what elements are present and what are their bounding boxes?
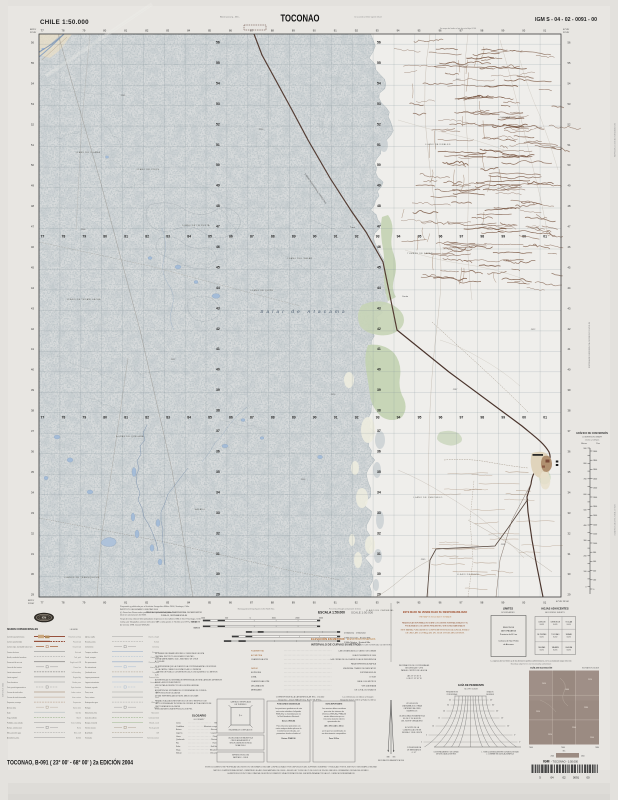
svg-text:Region bdy: Region bdy xyxy=(73,677,81,679)
svg-text:ELEVATION GUIDE: ELEVATION GUIDE xyxy=(582,667,600,670)
svg-text:parametros locales referidos a: parametros locales referidos al xyxy=(277,732,302,735)
svg-text:93: 93 xyxy=(376,235,380,239)
svg-text:DEL NORTE VERDADERO: DEL NORTE VERDADERO xyxy=(401,720,423,723)
svg-text:3000: 3000 xyxy=(593,451,597,453)
svg-text:ESCALA 1:50.000: ESCALA 1:50.000 xyxy=(318,611,345,615)
svg-text:. 2308: . 2308 xyxy=(80,229,85,231)
svg-text:37: 37 xyxy=(216,429,220,433)
svg-text:2000: 2000 xyxy=(295,618,299,620)
svg-text:son directamente comparables.: son directamente comparables. xyxy=(322,732,347,735)
svg-text:0: 0 xyxy=(586,586,587,588)
svg-text:DE 1.78 A 2.30 GRADOS: DE 1.78 A 2.30 GRADOS xyxy=(355,689,377,692)
svg-text:77: 77 xyxy=(41,29,45,33)
svg-text:YARDS: YARDS xyxy=(193,626,200,629)
svg-text:ESTE DOCUMENTO ES PROPIEDAD DE: ESTE DOCUMENTO ES PROPIEDAD DEL INSTITUT… xyxy=(205,766,377,769)
svg-text:2320: 2320 xyxy=(548,734,552,736)
svg-text:Marsh: Marsh xyxy=(77,717,82,719)
svg-text:Provincia de El Loa: Provincia de El Loa xyxy=(500,634,518,636)
svg-text:ELIPSOIDE: ELIPSOIDE xyxy=(251,672,262,674)
svg-text:Panamerican hwy: Panamerican hwy xyxy=(68,637,81,639)
svg-text:aproximados de:: aproximados de: xyxy=(328,720,341,723)
svg-text:PLANIMETRIA: PLANIMETRIA xyxy=(251,650,264,653)
svg-text:7600: 7600 xyxy=(529,747,533,749)
svg-text:77: 77 xyxy=(41,235,45,239)
svg-text:Mountain range: Mountain range xyxy=(204,725,217,728)
svg-text:esta zona alcanzan valores: esta zona alcanzan valores xyxy=(323,717,344,720)
svg-text:SISTEMA DE REFERENCIA GEODESIC: SISTEMA DE REFERENCIA GEODESICO WGS-84 xyxy=(588,321,591,368)
svg-text:87: 87 xyxy=(250,29,254,33)
svg-text:LAT 23° 07' 30" S: LAT 23° 07' 30" S xyxy=(407,675,422,678)
svg-text:48: 48 xyxy=(377,204,381,208)
svg-text:AGUAS DE QUELANA: AGUAS DE QUELANA xyxy=(116,435,144,438)
svg-text:CONVERSION GRAPH: CONVERSION GRAPH xyxy=(582,435,603,438)
svg-text:53: 53 xyxy=(377,102,381,106)
svg-text:SANTIAGO - CHILE: SANTIAGO - CHILE xyxy=(233,756,249,759)
svg-text:METROS: METROS xyxy=(191,622,200,624)
svg-text:CHILE 1:50.000: CHILE 1:50.000 xyxy=(40,19,89,26)
svg-text:IGM: IGM xyxy=(42,617,47,620)
svg-text:THE MAP IS SOLD AS IT IS MADE: THE MAP IS SOLD AS IT IS MADE xyxy=(419,616,452,619)
svg-text:Power line: Power line xyxy=(74,667,82,669)
svg-text:2800: 2800 xyxy=(593,460,597,462)
svg-text:49: 49 xyxy=(216,184,220,188)
svg-text:200: 200 xyxy=(593,580,596,582)
svg-text:37: 37 xyxy=(377,429,381,433)
svg-text:47: 47 xyxy=(216,225,220,229)
svg-text:Refugio: Refugio xyxy=(85,707,91,709)
svg-text:Depression: Depression xyxy=(73,702,81,704)
svg-text:INFORMACION DE COORDENADAS: INFORMACION DE COORDENADAS xyxy=(399,664,430,667)
svg-text:B-092: B-092 xyxy=(553,637,557,639)
svg-text:600: 600 xyxy=(593,561,596,563)
svg-text:900: 900 xyxy=(584,448,587,450)
svg-text:GUÍA DE ELEVACIÓN: GUÍA DE ELEVACIÓN xyxy=(530,667,553,670)
svg-text:INTERVALO DE CURVAS 50 METROS: INTERVALO DE CURVAS 50 METROS xyxy=(311,643,361,647)
svg-text:Ruins: Ruins xyxy=(77,728,81,730)
svg-text:45°: 45° xyxy=(490,700,493,702)
svg-text:Rocky ground: Rocky ground xyxy=(149,728,159,730)
svg-text:TUMBRE DE ZAPAR: TUMBRE DE ZAPAR xyxy=(407,252,433,255)
svg-text:GEODESICAS Y UTM: GEODESICAS Y UTM xyxy=(405,667,423,670)
svg-text:97: 97 xyxy=(460,29,464,33)
svg-text:total sin autorizacion del IGM: total sin autorizacion del IGM. xyxy=(120,614,147,617)
svg-text:- LIMITES DE HOJA 0.5 CM DEREC: - LIMITES DE HOJA 0.5 CM DERECHO A 0.25 … xyxy=(155,671,218,674)
svg-text:Tranque, embalse: Tranque, embalse xyxy=(85,652,98,654)
svg-text:LLANOS DE TEBENQUICHE: LLANOS DE TEBENQUICHE xyxy=(64,576,100,579)
svg-text:800: 800 xyxy=(593,552,596,554)
svg-text:ZONA 19, SISTEMA WGS-84: ZONA 19, SISTEMA WGS-84 xyxy=(161,614,188,617)
svg-text:Vega, bofedal: Vega, bofedal xyxy=(7,717,17,719)
svg-text:Church, chapel: Church, chapel xyxy=(148,637,159,639)
svg-text:01: 01 xyxy=(543,416,547,420)
svg-text:River: River xyxy=(213,742,218,745)
svg-text:Zona 19 Sur: Zona 19 Sur xyxy=(329,738,339,740)
svg-text:SCALE 1:50.000: SCALE 1:50.000 xyxy=(351,611,373,615)
svg-text:. 2398: . 2398 xyxy=(500,544,505,546)
svg-text:42: 42 xyxy=(216,327,220,331)
svg-text:Tower: Tower xyxy=(155,697,160,699)
svg-text:POSICIONES GEODESICAS: POSICIONES GEODESICAS xyxy=(277,703,301,706)
svg-text:39: 39 xyxy=(377,388,381,392)
svg-text:cartas antiguas debe aplicarse: cartas antiguas debe aplicarse la xyxy=(276,727,302,730)
svg-text:86: 86 xyxy=(229,416,233,420)
svg-text:92: 92 xyxy=(355,235,359,239)
svg-text:LLANO DE VILAMA: LLANO DE VILAMA xyxy=(76,151,101,154)
svg-text:La vigencia de los limites y d: La vigencia de los limites y de las divi… xyxy=(491,660,572,663)
svg-text:67°45' 23°00': 67°45' 23°00' xyxy=(556,601,570,603)
svg-text:Curvas de nivel indice: Curvas de nivel indice xyxy=(7,692,23,694)
svg-text:43: 43 xyxy=(377,306,381,310)
svg-text:96: 96 xyxy=(439,416,443,420)
svg-text:99: 99 xyxy=(501,235,505,239)
svg-text:45: 45 xyxy=(449,700,451,702)
svg-text:LON 67° 52' 30" W: LON 67° 52' 30" W xyxy=(406,678,421,680)
svg-text:51: 51 xyxy=(216,143,220,147)
svg-text:PROBLEMA DE LOS LIMITES PENDIE: PROBLEMA DE LOS LIMITES PENDIENTES, VER … xyxy=(405,625,466,628)
svg-text:500: 500 xyxy=(584,509,587,511)
svg-text:LLANO PAJONALES: LLANO PAJONALES xyxy=(425,143,451,146)
svg-text:98: 98 xyxy=(480,416,484,420)
svg-text:Pies: Pies xyxy=(596,443,600,445)
svg-text:SALADO: SALADO xyxy=(195,508,206,511)
svg-text:2550: 2550 xyxy=(581,756,585,758)
svg-text:ADVERTENCIA: SISTEMAS DE COORD: ADVERTENCIA: SISTEMAS DE COORDENADAS DE … xyxy=(155,689,207,692)
svg-text:. 2345: . 2345 xyxy=(420,559,425,561)
svg-text:85: 85 xyxy=(208,416,212,420)
svg-text:Datum: WGS-84: Datum: WGS-84 xyxy=(282,720,295,723)
svg-text:0.25: 0.25 xyxy=(155,675,159,677)
svg-text:Salt flat: Salt flat xyxy=(211,745,218,748)
svg-text:Mina, pozo de agua: Mina, pozo de agua xyxy=(7,733,21,735)
svg-text:80: 80 xyxy=(103,416,107,420)
svg-text:44: 44 xyxy=(216,286,220,290)
svg-text:82: 82 xyxy=(145,235,149,239)
svg-text:00: 00 xyxy=(522,416,526,420)
svg-text:41: 41 xyxy=(216,347,220,351)
svg-text:Comp. por fotografias aereas v: Comp. por fotografias aereas verticales … xyxy=(120,620,198,623)
svg-text:22°45': 22°45' xyxy=(30,32,37,34)
svg-text:Ravine: Ravine xyxy=(211,739,217,741)
svg-text:LLANO DE POZO: LLANO DE POZO xyxy=(457,573,479,576)
svg-text:47: 47 xyxy=(377,225,381,229)
svg-text:IGM: IGM xyxy=(543,760,550,764)
svg-text:2400: 2400 xyxy=(565,689,569,691)
svg-text:LA REPRODUCCION TOTAL O PARCIA: LA REPRODUCCION TOTAL O PARCIAL DE ESTE … xyxy=(227,772,355,775)
svg-text:53: 53 xyxy=(216,102,220,106)
svg-text:56: 56 xyxy=(216,41,220,45)
svg-text:NOTA IMPORTANTE: NOTA IMPORTANTE xyxy=(326,703,344,706)
svg-text:ESTE MAPA AL PUBLICARSE NO COM: ESTE MAPA AL PUBLICARSE NO COMPROMETE EN… xyxy=(401,629,470,632)
svg-text:30: 30 xyxy=(377,572,381,576)
svg-text:1000: 1000 xyxy=(593,543,597,545)
svg-text:Huella, senda de herradura: Huella, senda de herradura xyxy=(7,657,26,659)
svg-text:400: 400 xyxy=(584,525,587,527)
svg-text:DATUM: DATUM xyxy=(251,667,258,670)
svg-text:B-096: B-096 xyxy=(567,649,571,651)
svg-text:. 2314: . 2314 xyxy=(330,394,335,396)
svg-text:SE ENTENDERA QUE LA CUADRICULA: SE ENTENDERA QUE LA CUADRICULA CONTINUA … xyxy=(155,665,217,668)
svg-text:19 SUR: 19 SUR xyxy=(369,677,376,679)
svg-text:92: 92 xyxy=(355,29,359,33)
svg-text:23°00': 23°00' xyxy=(28,603,35,605)
svg-text:LLANO DEL SALAR: LLANO DEL SALAR xyxy=(288,257,313,260)
svg-text:Lagoon: Lagoon xyxy=(211,733,217,735)
svg-text:77: 77 xyxy=(41,416,45,420)
svg-text:DECLINACION MAGNETICA 2004: DECLINACION MAGNETICA 2004 xyxy=(378,759,404,762)
svg-text:89: 89 xyxy=(292,235,296,239)
svg-text:33: 33 xyxy=(216,511,220,515)
svg-text:45: 45 xyxy=(216,265,220,269)
svg-text:400: 400 xyxy=(593,570,596,572)
svg-text:78: 78 xyxy=(62,235,66,239)
svg-text:Iglesia, capilla: Iglesia, capilla xyxy=(85,637,95,639)
svg-text:LLANO DE CHECHELO: LLANO DE CHECHELO xyxy=(413,496,442,499)
svg-text:34: 34 xyxy=(377,490,381,494)
svg-text:GLOSSARY: GLOSSARY xyxy=(194,718,206,721)
svg-text:2000: 2000 xyxy=(593,497,597,499)
svg-text:B-088: B-088 xyxy=(540,624,544,626)
svg-text:CONTOUR INTERVAL 50 METERS: CONTOUR INTERVAL 50 METERS xyxy=(357,644,392,647)
svg-text:Veranada: Veranada xyxy=(85,738,92,740)
svg-text:TOCONAO, B-091 ( 23° 00' - 68°: TOCONAO, B-091 ( 23° 00' - 68° 00' ) 2a … xyxy=(7,758,133,767)
svg-text:93: 93 xyxy=(376,416,380,420)
svg-text:87: 87 xyxy=(250,416,254,420)
svg-text:2400: 2400 xyxy=(593,478,597,480)
svg-text:80: 80 xyxy=(103,235,107,239)
svg-text:de Atacama: de Atacama xyxy=(503,643,514,646)
svg-text:REGION DE: REGION DE xyxy=(503,627,515,629)
svg-text:NUMERICOS: NUMERICOS xyxy=(407,711,419,713)
svg-text:2300: 2300 xyxy=(550,756,554,758)
svg-text:ELEVATIONS IN METERS: ELEVATIONS IN METERS xyxy=(347,638,376,641)
svg-text:TAR POSICION DE LA CARTA: TAR POSICION DE LA CARTA xyxy=(155,692,181,695)
svg-text:1000: 1000 xyxy=(201,618,205,620)
svg-text:CUESTA: CUESTA xyxy=(500,116,511,119)
svg-text:94: 94 xyxy=(397,416,401,420)
svg-text:88: 88 xyxy=(271,235,275,239)
svg-text:34: 34 xyxy=(216,490,220,494)
svg-text:54: 54 xyxy=(216,81,220,85)
svg-text:B-091: B-091 xyxy=(540,637,544,639)
svg-text:50: 50 xyxy=(216,163,220,167)
svg-text:LLANO DE VILOS: LLANO DE VILOS xyxy=(137,168,160,171)
svg-text:7680: 7680 xyxy=(595,747,599,749)
svg-text:School: School xyxy=(154,642,160,644)
svg-text:1000: 1000 xyxy=(272,618,276,620)
svg-text:79: 79 xyxy=(82,235,86,239)
svg-text:2200: 2200 xyxy=(593,488,597,490)
svg-text:91: 91 xyxy=(334,416,338,420)
svg-text:94: 94 xyxy=(397,235,401,239)
svg-text:1800: 1800 xyxy=(593,506,597,508)
svg-text:Spring: Spring xyxy=(154,687,159,689)
svg-text:Gravel road: Gravel road xyxy=(73,647,81,649)
svg-text:Ver mapa del indice al pie de: Ver mapa del indice al pie de esta Hoja … xyxy=(440,27,476,30)
svg-text:1 Kilómetro 1 Kilometer: 1 Kilómetro 1 Kilometer xyxy=(344,632,366,635)
svg-text:LAS COORDENADAS TECNICAS DE OR: LAS COORDENADAS TECNICAS DE ORIGEN, ACTU… xyxy=(155,702,212,705)
svg-text:Pozo, noria: Pozo, noria xyxy=(85,692,93,694)
svg-text:22°45': 22°45' xyxy=(563,32,570,34)
svg-text:IGM CHILE 2004: IGM CHILE 2004 xyxy=(3,683,5,697)
svg-text:30: 30 xyxy=(447,705,449,707)
svg-text:45: 45 xyxy=(377,265,381,269)
svg-text:97: 97 xyxy=(460,235,464,239)
svg-text:0: 0 xyxy=(593,589,594,591)
svg-text:WGS-84 y su materializacion es: WGS-84 y su materializacion es xyxy=(276,712,301,715)
svg-text:la Red Geodesica Nacional.: la Red Geodesica Nacional. xyxy=(278,716,300,718)
svg-text:CARTOGRAFIA DE LA CARTA: CARTOGRAFIA DE LA CARTA xyxy=(155,705,181,708)
svg-text:81: 81 xyxy=(124,235,128,239)
svg-text:ANTOFAGASTA: ANTOFAGASTA xyxy=(501,629,516,632)
svg-text:49: 49 xyxy=(377,184,381,188)
svg-text:GRÁFICO DE CONVERSIÓN: GRÁFICO DE CONVERSIÓN xyxy=(576,432,608,435)
svg-text:B-089: B-089 xyxy=(553,624,557,626)
svg-text:84: 84 xyxy=(187,235,191,239)
svg-text:DESVIA 0° 18' AL OESTE: DESVIA 0° 18' AL OESTE xyxy=(402,731,423,734)
svg-text:46: 46 xyxy=(377,245,381,249)
svg-text:56: 56 xyxy=(377,41,381,45)
svg-text:. 2510: . 2510 xyxy=(455,79,460,81)
svg-text:Edición parcial g... Metr...: Edición parcial g... Metr... xyxy=(220,16,241,19)
svg-text:LLANO DE TECANLLACHE: LLANO DE TECANLLACHE xyxy=(67,298,101,301)
svg-text:B-090: B-090 xyxy=(567,624,571,626)
svg-text:BLACK NUMBERS IN 1000: BLACK NUMBERS IN 1000 xyxy=(353,654,376,657)
svg-text:HOJAS ADYACENTES: HOJAS ADYACENTES xyxy=(541,607,568,611)
svg-text:Tiraje de esta edicion 500 eje: Tiraje de esta edicion 500 ejemplares im… xyxy=(120,618,202,621)
svg-text:600: 600 xyxy=(584,494,587,496)
svg-text:68°15': 68°15' xyxy=(28,600,35,602)
svg-text:Las referencias se indican al: Las referencias se indican al margen xyxy=(343,696,374,699)
svg-text:INSTITUTO GEOGRAFICO MILITAR 2: INSTITUTO GEOGRAFICO MILITAR 2004 xyxy=(120,608,159,611)
svg-text:Woods, scrub: Woods, scrub xyxy=(149,723,159,725)
svg-text:36: 36 xyxy=(216,450,220,454)
svg-text:Cordillera: Cordillera xyxy=(176,725,185,728)
svg-text:Los usuarios deben considerar: Los usuarios deben considerar xyxy=(322,707,346,710)
svg-text:15°: 15° xyxy=(501,718,504,720)
svg-text:2340: 2340 xyxy=(572,727,576,729)
svg-text:97: 97 xyxy=(460,416,464,420)
svg-text:Salar: Salar xyxy=(176,745,181,748)
svg-text:500: 500 xyxy=(225,618,228,620)
svg-text:. 2387: . 2387 xyxy=(452,389,457,391)
svg-text:Ferrocarril de una via: Ferrocarril de una via xyxy=(7,662,22,664)
svg-text:ΔN = 370 m ΔE = 210 m: ΔN = 370 m ΔE = 210 m xyxy=(324,726,344,728)
svg-text:Poblado, casa aislada: Poblado, casa aislada xyxy=(7,723,23,725)
svg-text:95: 95 xyxy=(418,416,422,420)
svg-text:. 2316: . 2316 xyxy=(300,479,305,481)
svg-text:67°45': 67°45' xyxy=(563,29,570,31)
svg-text:de terreno 1998. Datum WGS-84: de terreno 1998. Datum WGS-84 xyxy=(120,623,150,626)
svg-text:Salar: Salar xyxy=(7,712,11,714)
svg-text:Datum: PSAD-56: Datum: PSAD-56 xyxy=(282,737,296,740)
svg-text:84: 84 xyxy=(187,416,191,420)
svg-text:Plain: Plain xyxy=(213,736,217,738)
svg-text:52: 52 xyxy=(377,122,381,126)
svg-text:82: 82 xyxy=(145,29,149,33)
svg-text:DEGREES: DEGREES xyxy=(486,694,494,696)
svg-text:78: 78 xyxy=(62,416,66,420)
svg-text:GLOSARIO: GLOSARIO xyxy=(192,714,206,718)
svg-text:32: 32 xyxy=(377,531,381,535)
svg-text:2600: 2600 xyxy=(593,469,597,471)
svg-text:31: 31 xyxy=(377,552,381,556)
svg-text:2350: 2350 xyxy=(536,711,540,713)
svg-text:ADJOINING SHEETS: ADJOINING SHEETS xyxy=(545,611,565,614)
svg-text:99: 99 xyxy=(501,416,505,420)
svg-text:2: 2 xyxy=(421,742,422,744)
svg-text:CORRESPONDE A LA CARTA REGULAR: CORRESPONDE A LA CARTA REGULAR ESC. 1:50… xyxy=(276,696,324,699)
svg-text:Llano: Llano xyxy=(176,736,181,738)
svg-text:20: 20 xyxy=(443,711,445,713)
svg-text:ZONA: ZONA xyxy=(251,676,257,679)
svg-text:83: 83 xyxy=(166,416,170,420)
svg-text:LEGEND: LEGEND xyxy=(70,629,79,631)
svg-text:04: 04 xyxy=(550,776,554,780)
svg-text:CERROS DE: CERROS DE xyxy=(551,622,560,624)
svg-text:43: 43 xyxy=(216,306,220,310)
svg-text:10°: 10° xyxy=(507,726,510,728)
svg-text:Depresion, escarpe: Depresion, escarpe xyxy=(7,702,21,704)
svg-text:2520: 2520 xyxy=(588,679,592,681)
svg-text:VER DIAGRAMA: VER DIAGRAMA xyxy=(362,684,377,687)
svg-text:Laguna: Laguna xyxy=(176,733,183,735)
svg-text:44: 44 xyxy=(377,286,381,290)
svg-text:0: 0 xyxy=(250,618,251,620)
svg-text:EN TERRENO: EN TERRENO xyxy=(235,704,247,706)
svg-text:AL DE LA EDICION ANTERIOR: AL DE LA EDICION ANTERIOR xyxy=(155,681,181,684)
svg-text:88: 88 xyxy=(271,416,275,420)
svg-text:86: 86 xyxy=(229,235,233,239)
svg-text:Canal, acequia: Canal, acequia xyxy=(85,657,96,659)
svg-text:30°: 30° xyxy=(492,705,495,707)
svg-text:Estero: Estero xyxy=(176,728,181,731)
svg-text:Comuna de San Pedro: Comuna de San Pedro xyxy=(498,641,519,643)
svg-text:2450: 2450 xyxy=(542,683,546,685)
svg-text:Cerrito: Cerrito xyxy=(402,295,409,298)
svg-text:METODO CUATRICROMIA OFFSET - R: METODO CUATRICROMIA OFFSET - REIMPRESO E… xyxy=(214,769,370,772)
svg-text:02: 02 xyxy=(562,776,566,780)
svg-text:ESQUEMA DE COMPILACION: ESQUEMA DE COMPILACION xyxy=(229,729,253,732)
svg-text:. 2422: . 2422 xyxy=(530,329,535,331)
svg-text:800: 800 xyxy=(584,463,587,465)
svg-text:NOTAS: REFERENCIAS DE NIVEL ME: NOTAS: REFERENCIAS DE NIVEL MEDIO DEL MA… xyxy=(155,694,199,697)
svg-text:PARA REFERENCIA RAPIDA: PARA REFERENCIA RAPIDA xyxy=(351,663,377,666)
svg-text:DECLINACION: DECLINACION xyxy=(251,684,265,687)
svg-text:UNIVERSAL TRANSV DE MERCATOR: UNIVERSAL TRANSV DE MERCATOR xyxy=(343,667,377,670)
svg-text:0° 07': 0° 07' xyxy=(412,752,417,754)
svg-text:- TOCONAO - 1:50.000: - TOCONAO - 1:50.000 xyxy=(551,759,579,763)
svg-text:PROYECCION UNIVERSAL TRANSVERS: PROYECCION UNIVERSAL TRANSVERSAL DE MERC… xyxy=(146,611,202,614)
svg-text:. 2312: . 2312 xyxy=(170,359,175,361)
svg-text:79: 79 xyxy=(82,416,86,420)
svg-text:Terreno rocoso: Terreno rocoso xyxy=(85,728,96,730)
svg-text:SE DEBEN INFORMAR ERRORES U OM: SE DEBEN INFORMAR ERRORES U OMISIONES DE… xyxy=(155,652,205,655)
svg-text:36: 36 xyxy=(377,450,381,454)
svg-text:42: 42 xyxy=(377,327,381,331)
svg-text:SIGNOS CONVENCIONALES: SIGNOS CONVENCIONALES xyxy=(7,627,38,631)
svg-text:ALTIMETRIA: ALTIMETRIA xyxy=(251,654,263,657)
svg-text:. 2465: . 2465 xyxy=(480,224,485,226)
svg-text:82: 82 xyxy=(145,416,149,420)
svg-text:68°15': 68°15' xyxy=(30,29,37,31)
svg-text:55: 55 xyxy=(216,61,220,65)
svg-text:1 metro = 3.28 pies: 1 metro = 3.28 pies xyxy=(585,439,600,442)
svg-text:41: 41 xyxy=(377,347,381,351)
svg-text:0091: 0091 xyxy=(573,776,580,780)
svg-text:50: 50 xyxy=(377,163,381,167)
svg-text:ESTA CARTA ES UNA REPRODUCCION: ESTA CARTA ES UNA REPRODUCCION FIEL xyxy=(155,708,192,711)
svg-text:LLANO DE QUIPE: LLANO DE QUIPE xyxy=(251,289,274,292)
